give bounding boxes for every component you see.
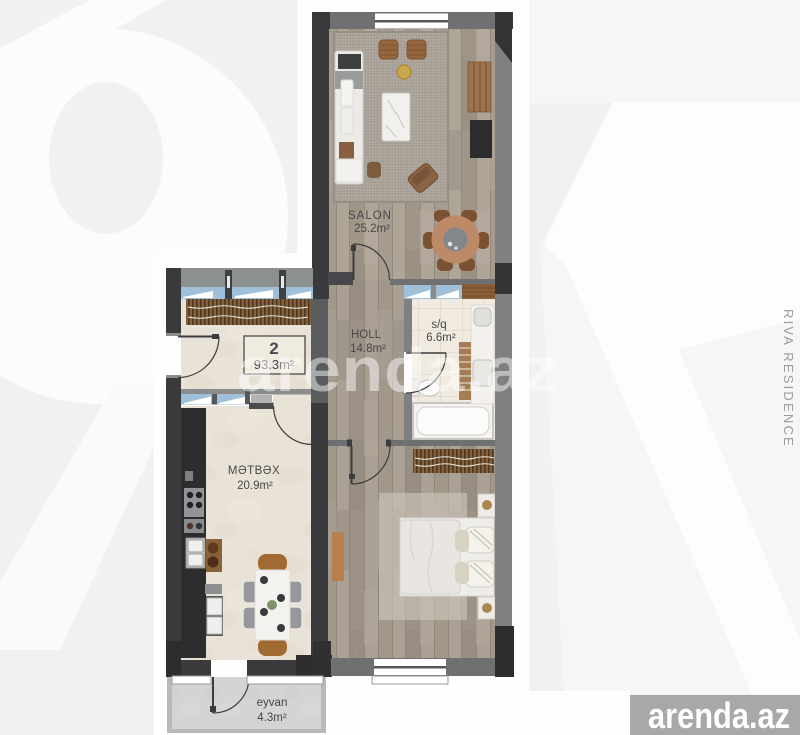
svg-text:arenda.az: arenda.az bbox=[648, 695, 790, 735]
svg-text:20.9m²: 20.9m² bbox=[237, 480, 273, 492]
svg-text:MƏTBƏX: MƏTBƏX bbox=[228, 465, 280, 477]
svg-text:s/q: s/q bbox=[431, 319, 446, 331]
svg-text:RIVA RESIDENCE: RIVA RESIDENCE bbox=[781, 309, 796, 448]
svg-text:SALON: SALON bbox=[348, 210, 392, 222]
svg-text:4.3m²: 4.3m² bbox=[257, 712, 287, 724]
svg-text:25.2m²: 25.2m² bbox=[354, 223, 390, 235]
svg-text:arenda.az: arenda.az bbox=[237, 336, 559, 405]
svg-text:eyvan: eyvan bbox=[257, 697, 288, 709]
